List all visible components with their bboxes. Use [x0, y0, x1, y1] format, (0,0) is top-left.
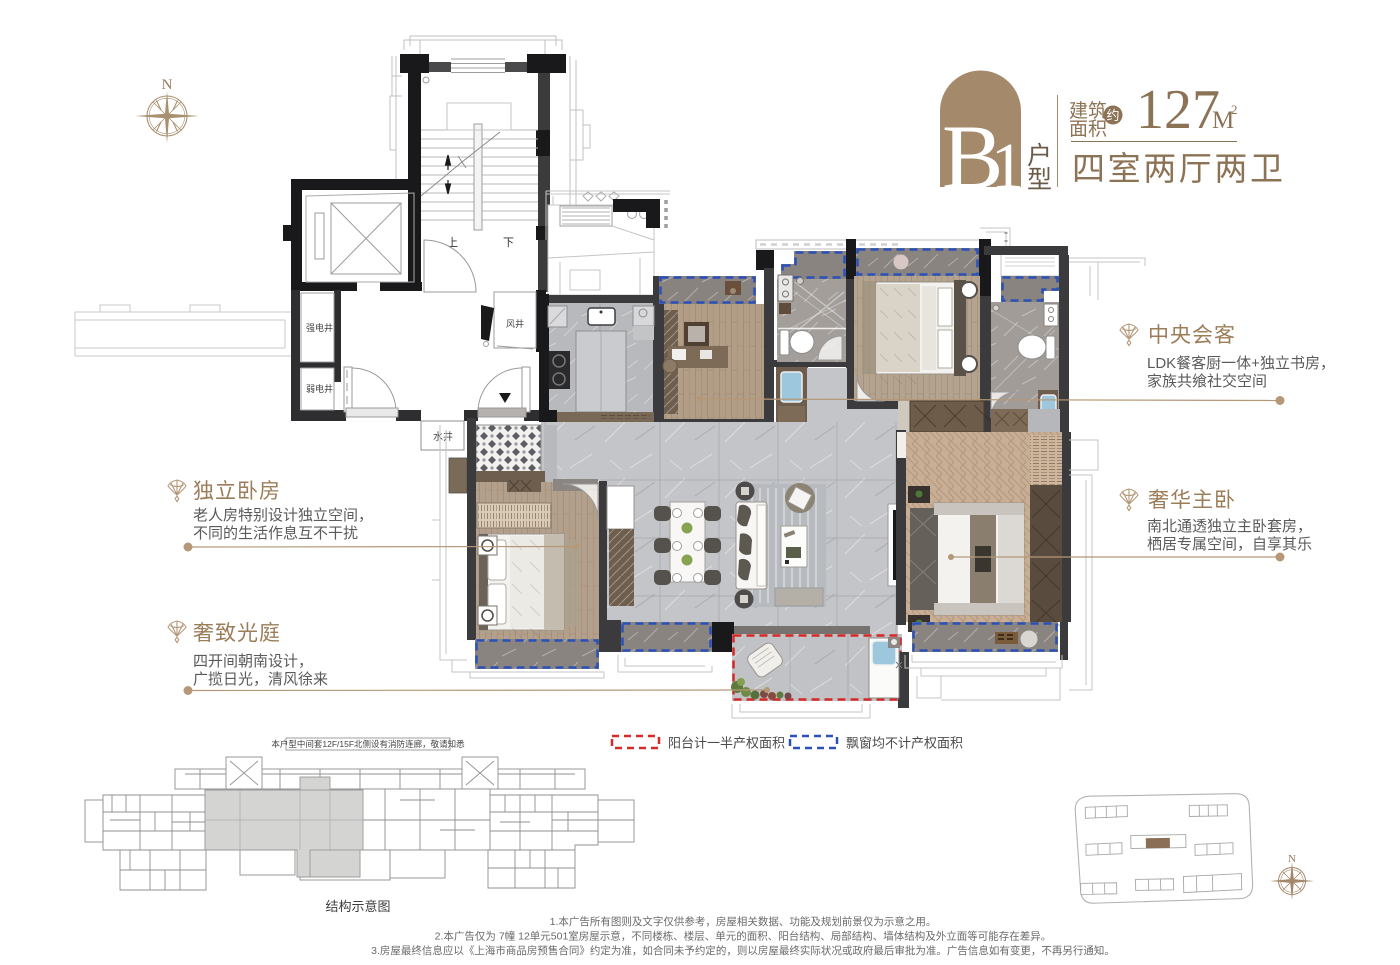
svg-text:不同的生活作息互不干扰: 不同的生活作息互不干扰 — [193, 525, 358, 542]
svg-text:2.本广告仅为 7幢 12单元501室房屋示意，不同楼栋、楼: 2.本广告仅为 7幢 12单元501室房屋示意，不同楼栋、楼层、单元的面积、阳台… — [435, 930, 1052, 943]
svg-text:阳台计一半产权面积: 阳台计一半产权面积 — [668, 736, 785, 751]
svg-text:LDK餐客厨一体+独立书房，: LDK餐客厨一体+独立书房， — [1147, 355, 1335, 372]
svg-text:老人房特别设计独立空间，: 老人房特别设计独立空间， — [193, 507, 373, 524]
svg-text:弱电井: 弱电井 — [306, 383, 333, 394]
svg-text:中央会客: 中央会客 — [1148, 324, 1236, 347]
svg-text:3.房屋最终信息应以《上海市商品房预售合同》约定为准，如合同: 3.房屋最终信息应以《上海市商品房预售合同》约定为准，如合同未予约定的，则以房屋… — [371, 944, 1115, 957]
svg-text:本户型中间套12F/15F北侧设有消防连廊，敬请知悉: 本户型中间套12F/15F北侧设有消防连廊，敬请知悉 — [271, 739, 465, 749]
svg-text:奢华主卧: 奢华主卧 — [1148, 489, 1236, 512]
svg-text:下: 下 — [503, 237, 514, 249]
svg-text:面积: 面积 — [1069, 118, 1107, 140]
svg-text:风井: 风井 — [506, 318, 524, 329]
svg-text:南北通透独立主卧套房，: 南北通透独立主卧套房， — [1147, 518, 1312, 535]
svg-text:奢致光庭: 奢致光庭 — [193, 622, 281, 645]
svg-text:127: 127 — [1136, 79, 1220, 141]
svg-text:N: N — [162, 77, 173, 93]
svg-text:2: 2 — [1231, 102, 1238, 117]
svg-text:四室两厅两卫: 四室两厅两卫 — [1072, 150, 1286, 187]
svg-text:四开间朝南设计，: 四开间朝南设计， — [193, 653, 313, 670]
svg-text:飘窗均不计产权面积: 飘窗均不计产权面积 — [846, 736, 963, 751]
svg-text:栖居专属空间，自享其乐: 栖居专属空间，自享其乐 — [1147, 536, 1312, 553]
svg-text:广揽日光，清风徐来: 广揽日光，清风徐来 — [193, 671, 328, 688]
svg-text:强电井: 强电井 — [306, 322, 333, 333]
svg-text:水井: 水井 — [433, 430, 453, 443]
svg-text:约: 约 — [1106, 108, 1119, 123]
svg-text:型: 型 — [1027, 166, 1052, 194]
svg-text:家族共飨社交空间: 家族共飨社交空间 — [1147, 372, 1267, 390]
svg-text:独立卧房: 独立卧房 — [193, 480, 281, 503]
svg-text:1.本广告所有图则及文字仅供参考，房屋相关数据、功能及规划前: 1.本广告所有图则及文字仅供参考，房屋相关数据、功能及规划前景仅为示意之用。 — [550, 915, 937, 928]
svg-text:1: 1 — [991, 130, 1024, 203]
svg-text:结构示意图: 结构示意图 — [325, 899, 390, 914]
